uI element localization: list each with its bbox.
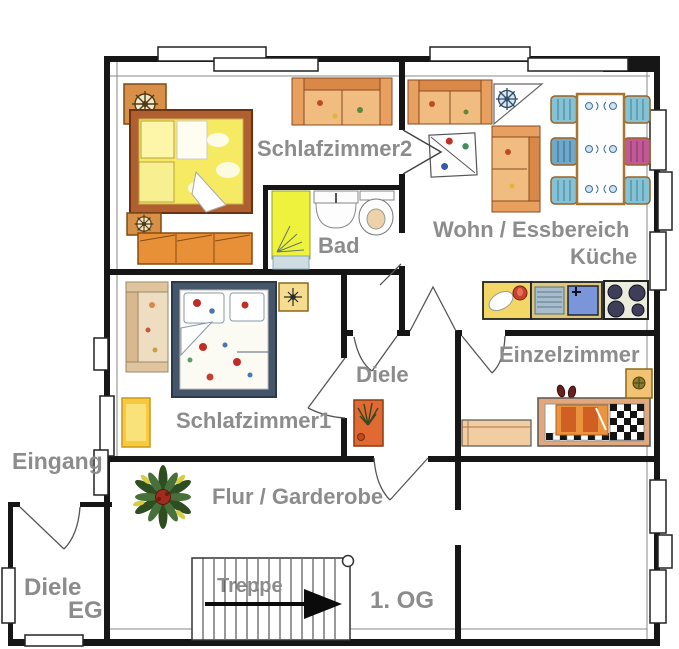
- chair: [551, 138, 577, 165]
- staircase: [192, 556, 354, 641]
- label-eingang: Eingang: [12, 450, 103, 473]
- room-label-einzelzimmer: Einzelzimmer: [499, 344, 640, 366]
- sofa: [408, 80, 492, 124]
- sink-basin: [568, 286, 598, 315]
- corner-table: [494, 84, 542, 124]
- dining-table: [577, 94, 624, 204]
- chair: [551, 177, 577, 204]
- room-label-schlafzimmer1: Schlafzimmer1: [176, 410, 331, 432]
- plant-icon: [132, 465, 193, 529]
- nightstand: [127, 213, 161, 235]
- toilet: [359, 191, 394, 235]
- room-label-wohn-essbereich: Wohn / Essbereich: [433, 219, 629, 241]
- double-bed-floral: [172, 282, 276, 397]
- sofa: [126, 282, 168, 372]
- room-label-kueche: Küche: [570, 246, 637, 268]
- yellow-chest: [122, 398, 150, 447]
- room-label-flur-garderobe: Flur / Garderobe: [212, 486, 383, 508]
- room-label-bad: Bad: [318, 235, 360, 257]
- nightstand: [279, 283, 308, 311]
- room-label-diele: Diele: [356, 364, 409, 386]
- eingang-door: [20, 507, 80, 549]
- chair: [624, 138, 650, 165]
- chair: [624, 177, 650, 204]
- sofa: [292, 78, 392, 125]
- sink-drainboard: [535, 287, 564, 314]
- double-bed-yellow: [130, 110, 252, 213]
- nightstand: [626, 369, 652, 398]
- living-dining-furniture: [408, 80, 650, 319]
- label-erste-og: 1. OG: [370, 589, 434, 613]
- slippers-icon: [556, 384, 577, 398]
- label-treppe: Treppe: [217, 576, 283, 596]
- dresser: [138, 233, 252, 264]
- diele-cabinet: [354, 400, 383, 446]
- stove-burners-icon: [604, 281, 648, 319]
- washbasin: [314, 191, 358, 228]
- kitchen-door: [410, 287, 456, 331]
- chair: [551, 96, 577, 123]
- shower: [272, 191, 310, 269]
- dining-set: [551, 94, 650, 204]
- newel-post: [343, 556, 354, 567]
- chess-blanket-icon: [610, 404, 644, 440]
- einzelzimmer-furniture: [462, 369, 652, 446]
- chair: [624, 96, 650, 123]
- floor-plan: Schlafzimmer2 Bad Wohn / Essbereich Küch…: [0, 0, 679, 649]
- bench: [462, 420, 531, 446]
- single-bed: [538, 398, 650, 446]
- sofa: [492, 126, 540, 212]
- kitchen-counter: [483, 281, 648, 319]
- room-label-schlafzimmer2: Schlafzimmer2: [257, 138, 412, 160]
- floor-plan-drawing: [0, 0, 679, 649]
- room-label-diele-eg-line2: EG: [68, 599, 103, 623]
